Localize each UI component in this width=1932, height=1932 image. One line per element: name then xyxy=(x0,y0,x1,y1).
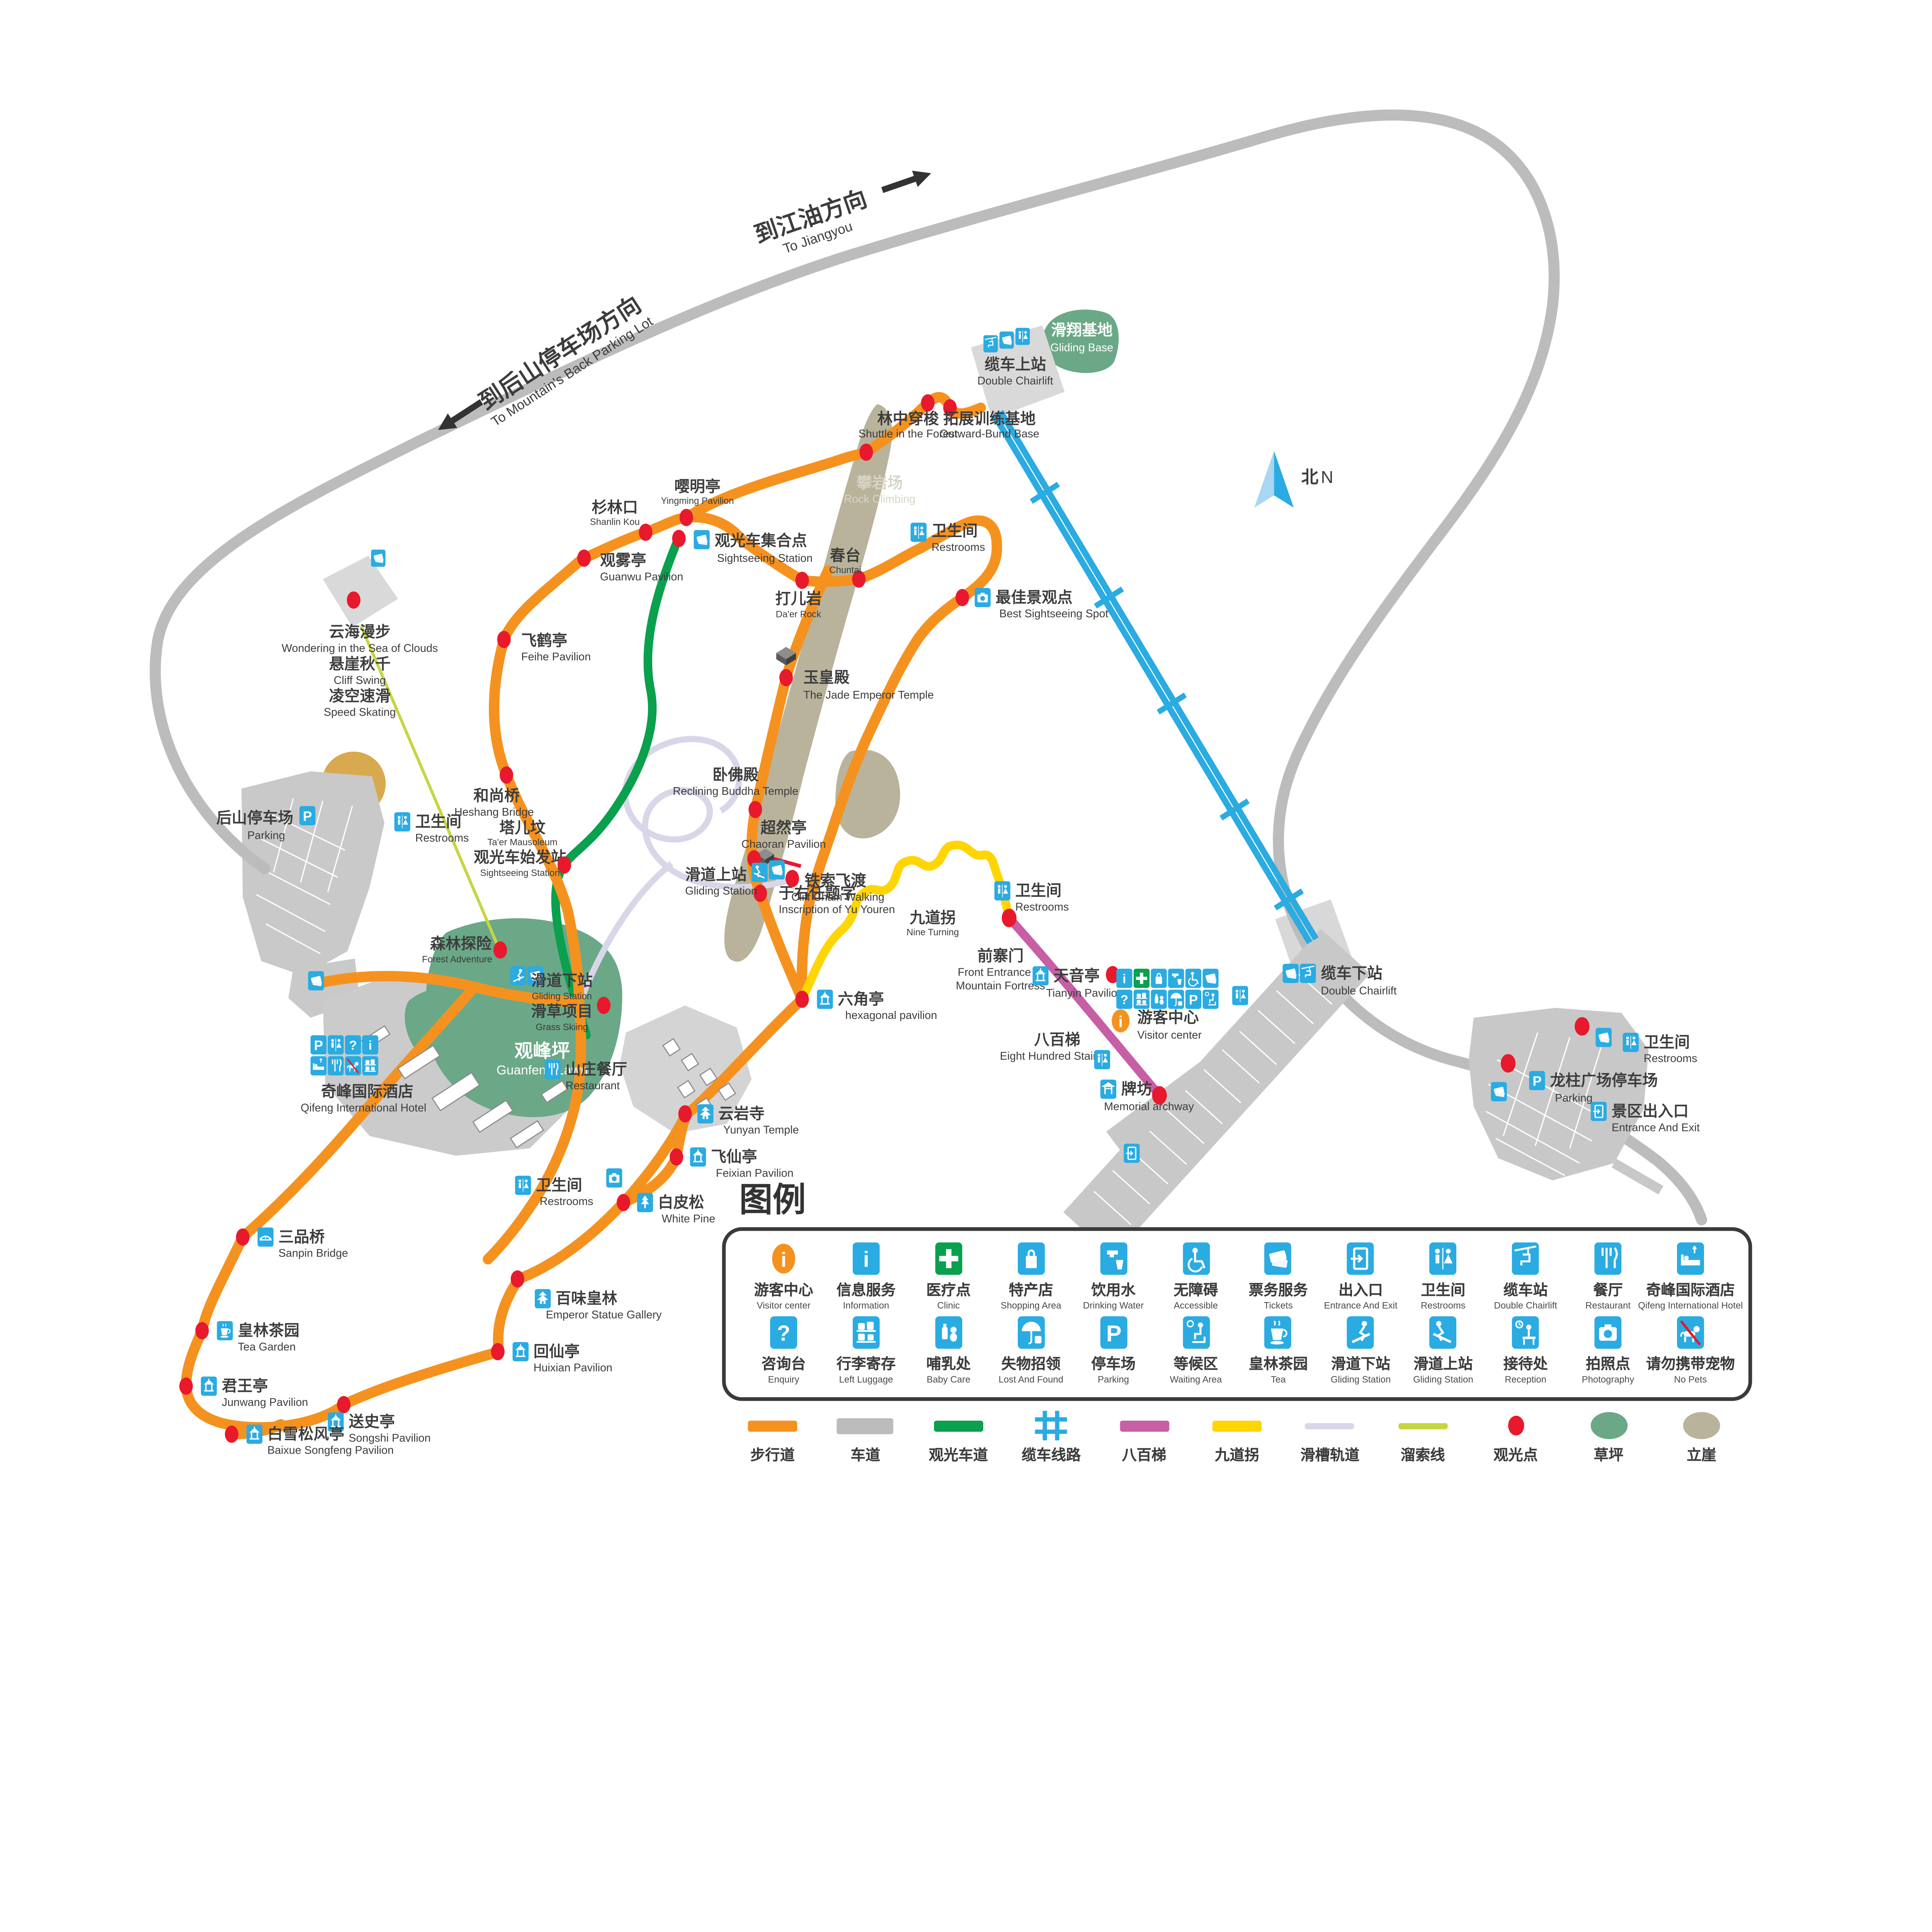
spot-marker xyxy=(597,997,611,1014)
spot-marker xyxy=(678,1105,692,1122)
legend-line-label: 八百梯 xyxy=(1122,1444,1167,1465)
legend-title: 图例 xyxy=(739,1173,1752,1221)
poi-taer-mausoleum: 塔儿坟 Ta'er Mausoleum 观光车始发站 Sightseeing S… xyxy=(474,820,571,879)
guanwu-label: 观雾亭 xyxy=(600,552,646,569)
legend-en: Qifeng International Hotel xyxy=(1638,1300,1743,1311)
legend-en: Shopping Area xyxy=(1001,1300,1061,1311)
legend-line-zipline: 溜索线 xyxy=(1382,1412,1463,1465)
archway-label-en: Memorial archway xyxy=(1104,1100,1194,1113)
spot-marker xyxy=(179,1378,193,1395)
poi-heshang: 和尚桥 Heshang Bridge xyxy=(454,766,534,818)
visitor-center-icon xyxy=(770,1242,797,1275)
archway-icon xyxy=(1100,1080,1116,1099)
sightseeing-station-label-en: Sightseeing Station xyxy=(717,552,813,565)
restrooms-label-en: Restrooms xyxy=(1015,901,1069,913)
legend-zh: 缆车站 xyxy=(1503,1279,1548,1300)
forest-adventure-label: 森林探险 xyxy=(430,935,492,952)
legend-item-information: 信息服务Information xyxy=(828,1242,905,1311)
enquiry-icon xyxy=(770,1316,797,1349)
tickets-icon xyxy=(769,860,785,879)
restrooms-label-en: Restrooms xyxy=(932,541,985,553)
legend-zh: 皇林茶园 xyxy=(1249,1353,1308,1374)
legend-line-cliff: 立崖 xyxy=(1661,1412,1742,1465)
chairlift-icon xyxy=(1512,1242,1539,1275)
restrooms-icon xyxy=(1094,1050,1110,1069)
stairs-swatch xyxy=(1119,1420,1169,1431)
legend-en: Left Luggage xyxy=(839,1374,893,1385)
chairlift-icon xyxy=(1300,964,1316,983)
poi-tianyin: 天音亭 Tianyin Pavilion xyxy=(1032,966,1123,1000)
information-icon xyxy=(362,1035,378,1054)
spot-marker xyxy=(511,1270,524,1288)
legend-en: Reception xyxy=(1505,1374,1546,1385)
best-spot-label: 最佳景观点 xyxy=(996,589,1073,606)
poi-shanlinkou: 杉林口 Shanlin Kou xyxy=(590,499,653,541)
legend-en: Double Chairlift xyxy=(1494,1300,1557,1311)
no-pets-icon xyxy=(1677,1316,1704,1349)
information-icon xyxy=(1116,969,1132,988)
legend-item-drinking-water: 饮用水Drinking Water xyxy=(1075,1242,1152,1311)
gliding-up-icon xyxy=(752,863,767,882)
pavilion-icon xyxy=(201,1376,217,1396)
jade-emperor-label: 玉皇殿 xyxy=(803,669,850,686)
spot-marker xyxy=(1002,909,1016,927)
chaoran-label-en: Chaoran Pavilion xyxy=(742,838,826,850)
lost-found-icon xyxy=(1168,990,1184,1009)
baixue-label-en: Baixue Songfeng Pavilion xyxy=(267,1444,394,1457)
legend-item-tea: 皇林茶园Tea xyxy=(1240,1316,1316,1385)
legend-en: Waiting Area xyxy=(1170,1374,1222,1385)
legend-zh: 奇峰国际酒店 xyxy=(1646,1279,1735,1300)
legend-line-row: 步行道 车道 观光车道 缆车线路 八百梯 九道拐 滑槽轨道 溜索线 观光点 草坪… xyxy=(722,1412,1752,1465)
spot-marker xyxy=(225,1425,238,1443)
photography-icon xyxy=(1594,1316,1621,1349)
legend-line-road: 车道 xyxy=(825,1412,906,1465)
best-spot-label-en: Best Sightseeing Spot xyxy=(999,608,1108,620)
spot-marker xyxy=(639,524,652,541)
legend-box: 游客中心Visitor center 信息服务Information 医疗点Cl… xyxy=(722,1227,1752,1401)
guanwu-label-en: Guanwu Pavilion xyxy=(600,571,683,583)
legend-zh: 请勿携带宠物 xyxy=(1646,1353,1735,1374)
bridge-icon xyxy=(257,1228,273,1247)
reception-icon xyxy=(1512,1316,1539,1349)
reclining-buddha-label-en: Reclining Buddha Temple xyxy=(673,785,798,798)
spot-marker xyxy=(347,592,361,609)
yunyan-label-en: Yunyan Temple xyxy=(723,1124,799,1136)
to-back-parking-label: 到后山停车场方向 xyxy=(474,291,645,415)
legend-line-label: 草坪 xyxy=(1594,1444,1624,1465)
compass: 北 N xyxy=(1254,451,1333,508)
chairlift-top-label-en: Double Chairlift xyxy=(977,375,1053,387)
parking-icon xyxy=(1185,990,1201,1009)
clinic-icon xyxy=(1134,969,1150,988)
poi-restrooms-backparking: 卫生间 Restrooms xyxy=(394,812,469,844)
legend-zh: 哺乳处 xyxy=(926,1353,971,1374)
baixue-label: 白雪松风亭 xyxy=(267,1425,344,1442)
legend-en: Clinic xyxy=(937,1300,960,1311)
visitor-center-label: 游客中心 xyxy=(1137,1009,1199,1026)
sea-of-clouds-area xyxy=(323,556,398,627)
restaurant-icon xyxy=(544,1060,560,1079)
legend-item-shopping: 特产店Shopping Area xyxy=(993,1242,1069,1311)
legend-item-visitor-center: 游客中心Visitor center xyxy=(745,1242,822,1311)
legend-en: Gliding Station xyxy=(1413,1374,1473,1385)
legend-item-parking: 停车场Parking xyxy=(1075,1316,1152,1385)
outward-base-label-en: Outward-Bund Base xyxy=(939,428,1039,440)
yu-youren-label: 于右任题字 xyxy=(779,885,855,902)
poi-nine-turning: 九道拐 Nine Turning xyxy=(906,909,959,937)
hotel-icon xyxy=(311,1056,327,1075)
hexagonal-label-en: hexagonal pavilion xyxy=(845,1009,937,1022)
legend-item-waiting-area: 等候区Waiting Area xyxy=(1158,1316,1234,1385)
cliff-swing-label: 悬崖秋千 xyxy=(329,655,390,672)
clinic-icon xyxy=(935,1242,962,1275)
no-pets-icon xyxy=(345,1056,361,1075)
visitor-center-label-en: Visitor center xyxy=(1137,1029,1202,1041)
poi-eight-hundred: 八百梯 Eight Hundred Stairs xyxy=(1000,1031,1102,1062)
chairlift-bottom-label: 缆车下站 xyxy=(1321,965,1382,982)
yingming-label: 嘤明亭 xyxy=(674,478,721,495)
legend-line-nineturn: 九道拐 xyxy=(1196,1412,1277,1465)
legend-zh: 特产店 xyxy=(1009,1279,1053,1300)
legend-en: Parking xyxy=(1098,1374,1129,1385)
grass-skiing-label: 滑草项目 xyxy=(531,1003,592,1020)
legend-item-no-pets: 请勿携带宠物No Pets xyxy=(1652,1316,1729,1385)
legend-item-left-luggage: 行李寄存Left Luggage xyxy=(828,1316,905,1385)
compass-arrow-dark xyxy=(1274,451,1294,508)
guanfeng-lawn-label: 观峰坪 xyxy=(514,1041,570,1061)
park-map: i ? P i xyxy=(0,0,1932,1553)
sightseeing-station-label: 观光车集合点 xyxy=(714,532,807,549)
restrooms-label: 卫生间 xyxy=(415,813,462,830)
spot-marker xyxy=(337,1396,350,1413)
feihe-label-en: Feihe Pavilion xyxy=(521,651,591,663)
legend-item-clinic: 医疗点Clinic xyxy=(910,1242,987,1311)
songshi-label: 送史亭 xyxy=(349,1413,395,1430)
left-luggage-icon xyxy=(1134,990,1150,1009)
legend-zh: 滑道下站 xyxy=(1331,1353,1390,1374)
gallery-icon xyxy=(535,1289,551,1308)
spot-marker xyxy=(786,870,799,887)
information-icon xyxy=(852,1242,879,1275)
legend-row-1: 游客中心Visitor center 信息服务Information 医疗点Cl… xyxy=(745,1242,1729,1311)
legend-zh: 咨询台 xyxy=(762,1353,806,1374)
legend-item-reception: 接待处Reception xyxy=(1487,1316,1564,1385)
baby-care-icon xyxy=(1151,990,1167,1009)
chute-swatch xyxy=(1305,1422,1355,1429)
white-pine-label-en: White Pine xyxy=(662,1213,715,1225)
legend-line-spot: 观光点 xyxy=(1475,1412,1556,1465)
spot-marker xyxy=(236,1228,250,1246)
spot-marker xyxy=(748,801,762,818)
restrooms-label-en: Restrooms xyxy=(1644,1053,1697,1065)
restrooms-icon xyxy=(1232,986,1248,1005)
legend-line-bus-road: 观光车道 xyxy=(918,1412,999,1465)
legend-en: Lost And Found xyxy=(998,1374,1063,1385)
legend-en: No Pets xyxy=(1674,1374,1707,1385)
poi-tea-garden: 皇林茶园 Tea Garden xyxy=(195,1321,299,1353)
poi-sightseeing-station: 观光车集合点 Sightseeing Station xyxy=(672,530,813,565)
chuntai-label: 春台 xyxy=(830,547,861,564)
tickets-icon xyxy=(694,530,709,549)
visitor-center-icon xyxy=(1112,1009,1129,1032)
legend-zh: 餐厅 xyxy=(1593,1279,1623,1300)
restrooms-icon xyxy=(1015,328,1030,345)
pavilion-icon xyxy=(817,990,833,1009)
legend-en: Accessible xyxy=(1174,1300,1218,1311)
poi-front-entrance: 前寨门 Front Entrance of Mountain Fortress xyxy=(956,909,1045,992)
tickets-icon xyxy=(371,549,385,567)
left-luggage-icon xyxy=(362,1056,378,1075)
legend-item-accessible: 无障碍Accessible xyxy=(1158,1242,1234,1311)
legend-row-2: 咨询台Enquiry 行李寄存Left Luggage 哺乳处Baby Care… xyxy=(745,1316,1729,1385)
entrance-exit-icon xyxy=(1347,1242,1374,1275)
legend-zh: 游客中心 xyxy=(754,1279,813,1300)
tickets-icon xyxy=(1000,332,1014,349)
restrooms-label: 卫生间 xyxy=(1644,1034,1690,1051)
legend-en: Entrance And Exit xyxy=(1324,1300,1397,1311)
huixian-label: 回仙亭 xyxy=(534,1343,580,1360)
legend-zh: 信息服务 xyxy=(837,1279,896,1300)
huixian-label-en: Huixian Pavilion xyxy=(534,1362,612,1374)
legend-en: Tea xyxy=(1271,1374,1286,1385)
restrooms-icon xyxy=(994,881,1010,901)
walking-trail-swatch xyxy=(748,1420,798,1431)
legend-line-stairs: 八百梯 xyxy=(1104,1412,1185,1465)
tea-icon xyxy=(1265,1316,1292,1349)
restrooms-icon xyxy=(911,523,927,542)
hotel-label: 奇峰国际酒店 xyxy=(321,1083,413,1100)
spot-marker xyxy=(795,991,809,1008)
back-parking-label: 后山停车场 xyxy=(216,810,293,827)
shanlinkou-label: 杉林口 xyxy=(592,499,638,516)
gliding-lower-label: 滑道下站 xyxy=(531,972,592,989)
sanpin-label-en: Sanpin Bridge xyxy=(279,1247,348,1260)
tianyin-label: 天音亭 xyxy=(1053,967,1100,984)
longzhu-parking-label: 龙柱广场停车场 xyxy=(1550,1072,1658,1089)
legend-en: Drinking Water xyxy=(1083,1300,1144,1311)
heshang-label: 和尚桥 xyxy=(473,787,520,804)
sea-of-clouds-label: 云海漫步 xyxy=(329,624,390,641)
legend-item-gliding-down: 滑道下站Gliding Station xyxy=(1323,1316,1399,1385)
legend-item-chairlift: 缆车站Double Chairlift xyxy=(1487,1242,1564,1311)
parking-icon xyxy=(1529,1071,1545,1090)
legend-item-hotel: 奇峰国际酒店Qifeng International Hotel xyxy=(1652,1242,1729,1311)
chairlift-icon xyxy=(983,335,998,352)
legend-line-label: 滑槽轨道 xyxy=(1300,1444,1359,1465)
songshi-label-en: Songshi Pavilion xyxy=(349,1432,430,1444)
legend-line-walking: 步行道 xyxy=(732,1412,813,1465)
legend-item-baby-care: 哺乳处Baby Care xyxy=(910,1316,987,1385)
legend-line-label: 九道拐 xyxy=(1215,1444,1259,1465)
heshang-label-en: Heshang Bridge xyxy=(454,806,534,818)
legend-item-restrooms: 卫生间Restrooms xyxy=(1405,1242,1481,1311)
gliding-down-icon xyxy=(1347,1316,1374,1349)
legend-zh: 接待处 xyxy=(1503,1353,1548,1374)
spot-marker xyxy=(491,1343,505,1361)
daer-rock-label-en: Da'er Rock xyxy=(776,609,821,620)
junwang-label: 君王亭 xyxy=(222,1378,268,1395)
jade-emperor-label-en: The Jade Emperor Temple xyxy=(803,689,934,701)
legend-en: Gliding Station xyxy=(1331,1374,1391,1385)
enquiry-icon xyxy=(1116,990,1132,1009)
legend-en: Visitor center xyxy=(757,1300,810,1311)
compass-label: 北 xyxy=(1301,468,1318,487)
speed-skating-label: 凌空速滑 xyxy=(329,687,390,704)
sightseeing-start-label-en: Sightseeing Station xyxy=(480,868,560,878)
legend-zh: 滑道上站 xyxy=(1413,1353,1473,1374)
waiting-area-icon xyxy=(1202,990,1218,1009)
restrooms-label-en: Restrooms xyxy=(415,832,469,844)
legend-line-label: 观光车道 xyxy=(929,1444,988,1465)
back-parking-label-en: Parking xyxy=(247,830,285,842)
emperor-gallery-label-en: Emperor Statue Gallery xyxy=(546,1309,662,1321)
legend-line-lawn: 草坪 xyxy=(1568,1412,1649,1465)
villa-restaurant-label: 山庄餐厅 xyxy=(566,1061,627,1078)
feihe-label: 飞鹤亭 xyxy=(521,632,568,649)
compass-label-n: N xyxy=(1321,468,1333,487)
tickets-icon xyxy=(1265,1242,1292,1275)
villa-restaurant-label-en: Restaurant xyxy=(566,1080,620,1092)
legend-zh: 医疗点 xyxy=(926,1279,971,1300)
yingming-label-en: Yingming Pavilion xyxy=(661,496,734,506)
poi-gliding-base: 滑翔基地 Gliding Base xyxy=(1050,321,1113,354)
legend-item-tickets: 票务服务Tickets xyxy=(1240,1242,1316,1311)
legend-line-label: 缆车线路 xyxy=(1022,1444,1081,1465)
restrooms-icon xyxy=(515,1176,531,1195)
front-entrance-label-en1: Front Entrance of xyxy=(957,966,1044,979)
yunyan-label: 云岩寺 xyxy=(718,1105,765,1122)
restrooms-label: 卫生间 xyxy=(1015,882,1062,899)
shuttle-forest-label: 林中穿梭 xyxy=(877,410,939,427)
restrooms-icon xyxy=(1623,1033,1639,1052)
sanpin-label: 三品桥 xyxy=(279,1228,325,1245)
emperor-gallery-label: 百味皇林 xyxy=(556,1290,617,1307)
pavilion-icon xyxy=(690,1147,706,1167)
legend-zh: 饮用水 xyxy=(1091,1279,1136,1300)
shopping-icon xyxy=(1151,969,1167,988)
bus-road-swatch xyxy=(934,1420,983,1431)
legend-line-label: 立崖 xyxy=(1687,1444,1716,1465)
sightseeing-start-label: 观光车始发站 xyxy=(474,849,566,866)
legend: 图例 游客中心Visitor center 信息服务Information 医疗… xyxy=(722,1173,1752,1548)
nine-turning-label: 九道拐 xyxy=(910,909,956,926)
outward-base-label: 拓展训练基地 xyxy=(943,410,1036,427)
chairlift-bottom-label-en: Double Chairlift xyxy=(1321,985,1396,997)
parking-icon xyxy=(311,1035,327,1054)
pavilion-icon xyxy=(247,1425,262,1444)
zipline-swatch xyxy=(1398,1422,1447,1429)
legend-zh: 行李寄存 xyxy=(837,1353,896,1374)
legend-en: Baby Care xyxy=(927,1374,970,1385)
legend-item-gliding-up: 滑道上站Gliding Station xyxy=(1405,1316,1481,1385)
spot-marker xyxy=(795,572,809,589)
legend-item-enquiry: 咨询台Enquiry xyxy=(745,1316,822,1385)
hotel-icon xyxy=(1677,1242,1704,1275)
entrance-exit-icon xyxy=(1124,1144,1139,1163)
legend-line-label: 步行道 xyxy=(750,1444,795,1465)
legend-zh: 停车场 xyxy=(1091,1353,1136,1374)
legend-item-lost-found: 失物招领Lost And Found xyxy=(993,1316,1069,1385)
cliff-swatch xyxy=(1683,1412,1720,1439)
waiting-area-icon xyxy=(1182,1316,1209,1349)
vehicle-road-swatch xyxy=(837,1418,894,1434)
legend-zh: 票务服务 xyxy=(1249,1279,1308,1300)
restaurant-icon xyxy=(1594,1242,1621,1275)
chuntai-label-en: Chuntai xyxy=(829,565,861,575)
nine-turning-label-en: Nine Turning xyxy=(906,927,959,937)
restrooms-label: 卫生间 xyxy=(536,1177,582,1194)
enquiry-icon xyxy=(345,1035,361,1054)
photography-icon xyxy=(606,1168,622,1188)
tea-garden-label: 皇林茶园 xyxy=(238,1322,299,1339)
lost-found-icon xyxy=(1017,1316,1044,1349)
pavilion-icon xyxy=(513,1342,529,1361)
legend-line-label: 溜索线 xyxy=(1401,1444,1445,1465)
left-luggage-icon xyxy=(852,1316,879,1349)
parking-icon xyxy=(299,806,315,825)
gliding-upper-label-en: Gliding Station xyxy=(685,885,757,897)
daer-rock-label: 打儿岩 xyxy=(776,590,822,607)
spot-marker xyxy=(921,394,935,412)
spot-marker xyxy=(779,669,793,686)
right-arrow-icon xyxy=(879,165,934,198)
reclining-buddha-label: 卧佛殿 xyxy=(713,766,759,783)
restrooms-icon xyxy=(328,1035,344,1054)
legend-zh: 卫生间 xyxy=(1421,1279,1465,1300)
lawn-swatch xyxy=(1590,1412,1627,1439)
spot-marker xyxy=(195,1322,209,1340)
poi-best-spot: 最佳景观点 Best Sightseeing Spot xyxy=(956,588,1109,620)
legend-zh: 失物招领 xyxy=(1002,1353,1061,1374)
legend-item-entrance-exit: 出入口Entrance And Exit xyxy=(1323,1242,1399,1311)
legend-zh: 出入口 xyxy=(1338,1279,1383,1300)
baby-care-icon xyxy=(935,1316,962,1349)
forest-adventure-label-en: Forest Adventure xyxy=(422,954,492,964)
tea-garden-label-en: Tea Garden xyxy=(238,1341,296,1353)
legend-line-label: 观光点 xyxy=(1493,1444,1538,1465)
tickets-icon xyxy=(1595,1028,1611,1047)
spot-marker xyxy=(672,530,685,547)
hotel-label-en: Qifeng International Hotel xyxy=(301,1102,426,1114)
spot-marker xyxy=(680,509,693,526)
spot-marker xyxy=(1501,1054,1515,1073)
direction-to-jiangyou: 到江油方向 To Jiangyou xyxy=(751,162,941,264)
restrooms-icon xyxy=(394,812,410,832)
tickets-icon xyxy=(1202,969,1218,988)
poi-hexagonal: 六角亭 hexagonal pavilion xyxy=(795,990,937,1022)
tickets-icon xyxy=(1491,1082,1507,1101)
restaurant-icon xyxy=(328,1056,344,1075)
entrance-exit-label-en: Entrance And Exit xyxy=(1612,1121,1700,1134)
legend-zh: 拍照点 xyxy=(1586,1353,1630,1374)
poi-junwang: 君王亭 Junwang Pavilion xyxy=(179,1376,308,1408)
legend-line-label: 车道 xyxy=(850,1444,880,1465)
pavilion-icon xyxy=(1032,966,1048,986)
poi-huixian: 回仙亭 Huixian Pavilion xyxy=(491,1342,612,1374)
gliding-down-icon xyxy=(510,966,526,986)
shanlinkou-label-en: Shanlin Kou xyxy=(590,517,640,527)
sea-of-clouds-label-en: Wondering in the Sea of Clouds xyxy=(282,642,438,655)
eight-hundred-label: 八百梯 xyxy=(1034,1031,1080,1048)
cliff-swing-label-en: Cliff Swing xyxy=(334,674,386,687)
tickets-icon xyxy=(308,971,324,990)
legend-zh: 等候区 xyxy=(1173,1353,1218,1374)
spot-marker xyxy=(1575,1017,1589,1036)
gliding-base-label-en: Gliding Base xyxy=(1050,342,1113,354)
yu-youren-label-en: Inscription of Yu Youren xyxy=(779,903,895,916)
restrooms-label-en: Restrooms xyxy=(540,1196,594,1208)
